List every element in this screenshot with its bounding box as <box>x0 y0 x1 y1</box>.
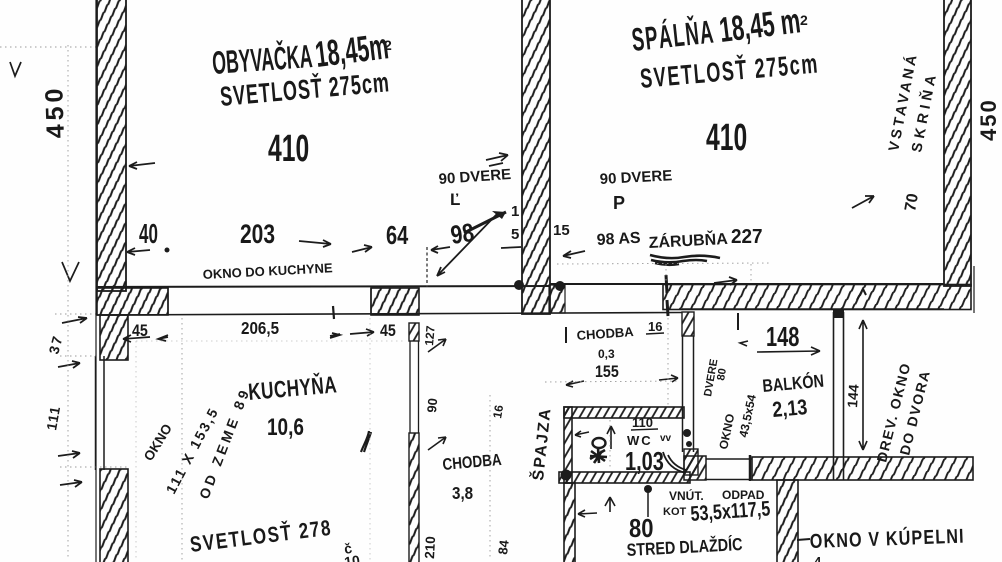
svg-text:203: 203 <box>240 220 275 250</box>
svg-text:450: 450 <box>976 98 1001 141</box>
svg-text:2: 2 <box>800 12 808 28</box>
svg-text:KOT: KOT <box>663 506 687 518</box>
svg-text:110: 110 <box>632 415 653 430</box>
svg-text:64: 64 <box>386 220 408 249</box>
svg-text:410: 410 <box>706 116 747 159</box>
svg-text:98 AS: 98 AS <box>596 230 641 249</box>
svg-text:Ľ: Ľ <box>450 190 460 209</box>
svg-text:144: 144 <box>844 384 862 409</box>
svg-text:155: 155 <box>595 363 619 381</box>
svg-text:210: 210 <box>422 536 438 559</box>
svg-text:90: 90 <box>424 398 440 414</box>
svg-text:45: 45 <box>380 322 396 340</box>
svg-text:40: 40 <box>139 218 158 249</box>
svg-text:80: 80 <box>715 367 729 381</box>
svg-text:0,3: 0,3 <box>598 347 615 361</box>
svg-text:98: 98 <box>449 219 476 251</box>
svg-text:2,13: 2,13 <box>771 396 808 423</box>
svg-text:127: 127 <box>422 325 438 346</box>
svg-text:10: 10 <box>343 552 361 562</box>
svg-text:4: 4 <box>814 554 822 562</box>
svg-text:3,8: 3,8 <box>452 483 473 503</box>
svg-text:206,5: 206,5 <box>241 319 279 338</box>
svg-text:16: 16 <box>490 404 506 420</box>
svg-text:vv: vv <box>660 433 672 444</box>
svg-text:70: 70 <box>902 192 922 213</box>
svg-text:410: 410 <box>268 127 309 170</box>
svg-text:1,03: 1,03 <box>625 446 664 475</box>
svg-text:84: 84 <box>495 538 512 555</box>
svg-text:15: 15 <box>553 222 570 239</box>
svg-text:148: 148 <box>766 322 799 353</box>
svg-text:10,6: 10,6 <box>267 413 304 441</box>
svg-text:450: 450 <box>40 84 70 139</box>
svg-text:16: 16 <box>648 319 662 334</box>
svg-text:P: P <box>613 193 625 213</box>
svg-text:2: 2 <box>384 37 392 53</box>
svg-text:1: 1 <box>511 203 519 220</box>
svg-text:227: 227 <box>731 225 763 248</box>
svg-text:5: 5 <box>511 226 519 243</box>
